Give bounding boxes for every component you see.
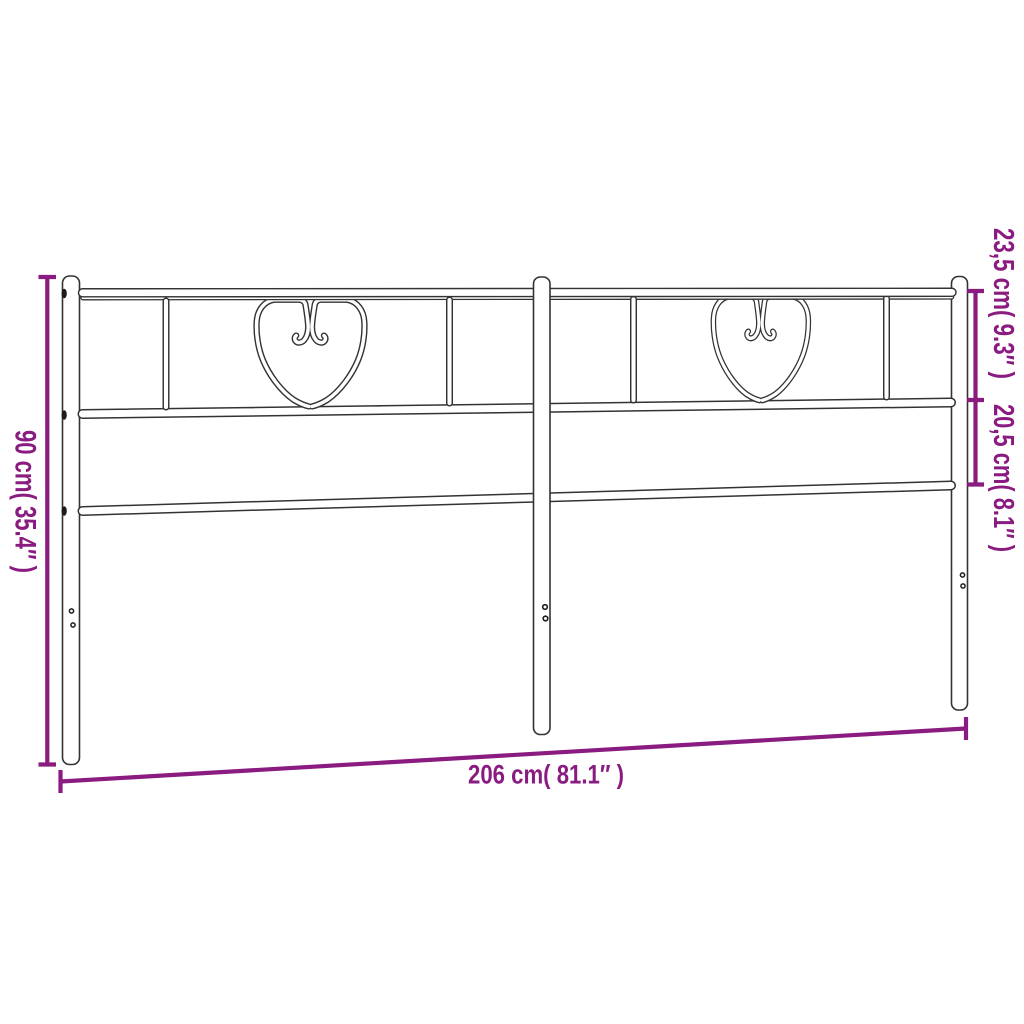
svg-text:206 cm( 81.1″ ): 206 cm( 81.1″ ) <box>468 760 624 790</box>
svg-text:23,5 cm( 9.3″ ): 23,5 cm( 9.3″ ) <box>987 228 1019 379</box>
svg-text:90 cm( 35.4″ ): 90 cm( 35.4″ ) <box>9 430 42 573</box>
svg-text:20,5 cm( 8.1″ ): 20,5 cm( 8.1″ ) <box>987 404 1019 552</box>
